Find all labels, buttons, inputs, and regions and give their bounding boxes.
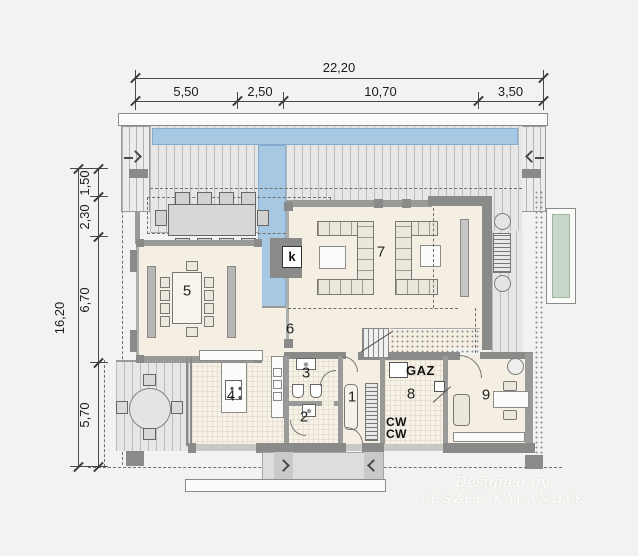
watermark: Designed by LESZEK KALANDYK	[0, 0, 638, 556]
watermark-line1: Designed by	[432, 473, 572, 491]
watermark-line2: LESZEK KALANDYK	[408, 492, 598, 507]
floor-plan-canvas: k	[0, 0, 638, 556]
